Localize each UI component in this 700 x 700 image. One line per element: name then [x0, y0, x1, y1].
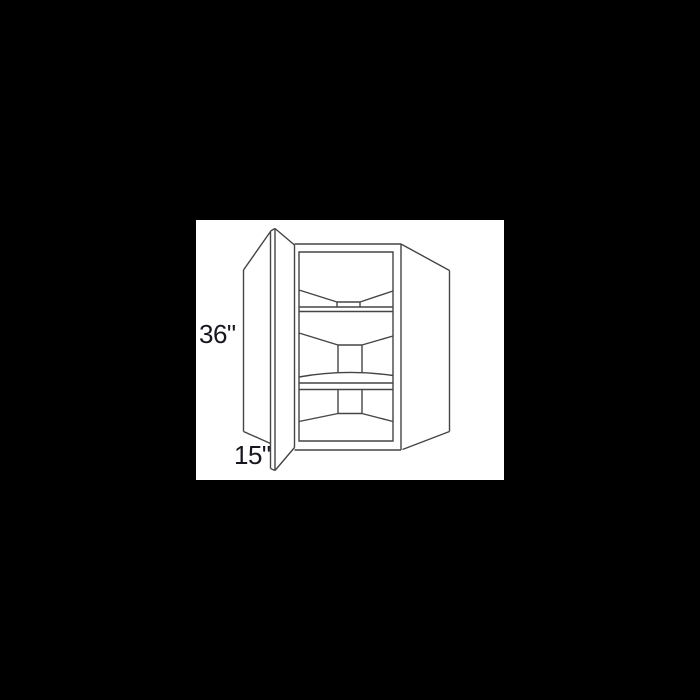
door-top-edge [275, 229, 295, 246]
shelf2-front-arc [299, 372, 393, 377]
shelf1-left-slope [299, 290, 337, 302]
door-bottom-edge [275, 448, 295, 471]
left-wing-top-edge [244, 232, 271, 271]
shelf1-right-slope [360, 291, 393, 302]
face-frame-opening [299, 252, 393, 441]
floor-right-slope [362, 414, 393, 422]
shelf2-right-slope [362, 336, 393, 345]
diagram-panel: 36" 15" [196, 220, 504, 480]
shelf2-left-slope [299, 333, 338, 345]
floor-left-slope [299, 414, 338, 422]
right-wing-bottom-edge [403, 432, 450, 450]
height-dimension-label: 36" [199, 321, 236, 347]
right-wing-top-edge [401, 244, 450, 271]
depth-dimension-label: 15" [234, 442, 271, 468]
canvas-background: 36" 15" [0, 0, 700, 700]
